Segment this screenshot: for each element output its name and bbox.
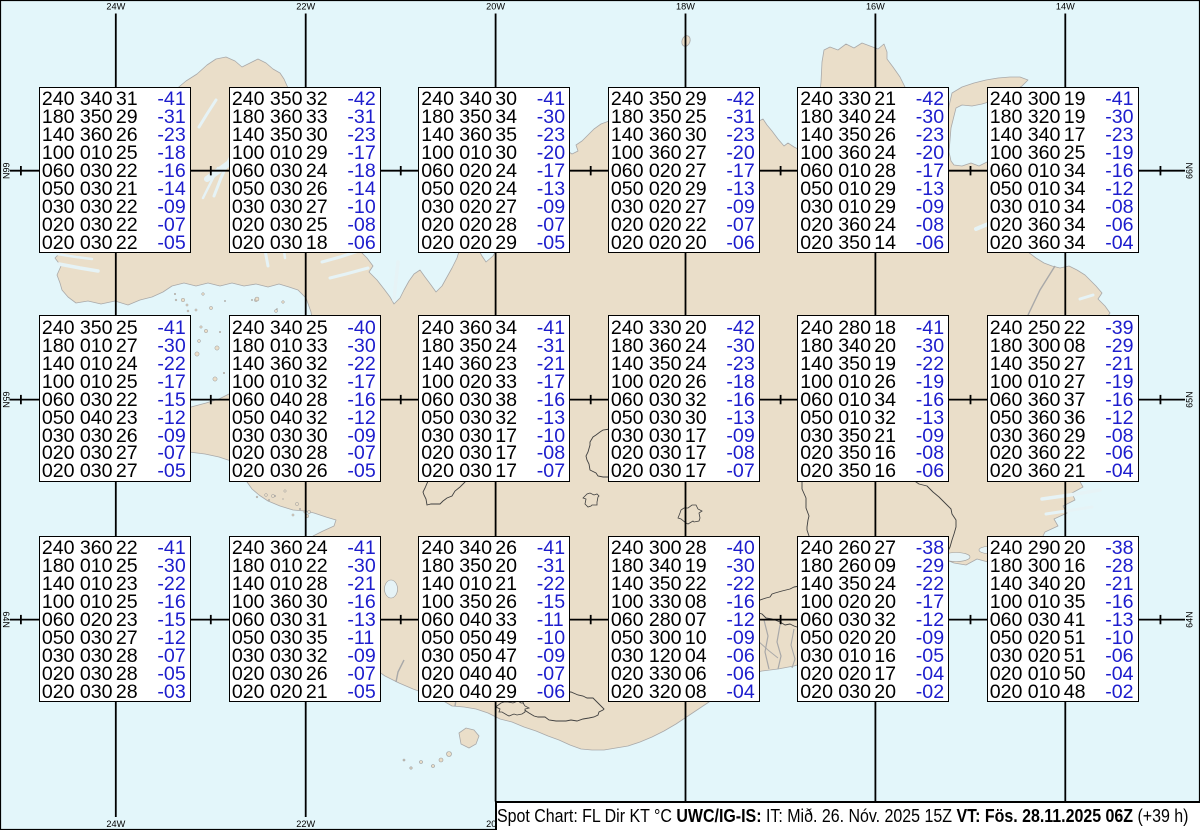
svg-text:18W: 18W	[676, 1, 695, 11]
svg-text:24W: 24W	[106, 1, 125, 11]
svg-text:14W: 14W	[1056, 1, 1075, 11]
svg-text:65N: 65N	[1185, 391, 1195, 408]
svg-text:22W: 22W	[296, 1, 315, 11]
svg-text:64N: 64N	[1, 611, 11, 628]
svg-text:24W: 24W	[106, 819, 125, 829]
svg-text:64N: 64N	[1185, 611, 1195, 628]
svg-text:16W: 16W	[866, 1, 885, 11]
svg-text:65N: 65N	[1, 391, 11, 408]
svg-text:66N: 66N	[1, 162, 11, 179]
svg-text:22W: 22W	[296, 819, 315, 829]
svg-text:66N: 66N	[1185, 162, 1195, 179]
svg-text:20W: 20W	[486, 1, 505, 11]
